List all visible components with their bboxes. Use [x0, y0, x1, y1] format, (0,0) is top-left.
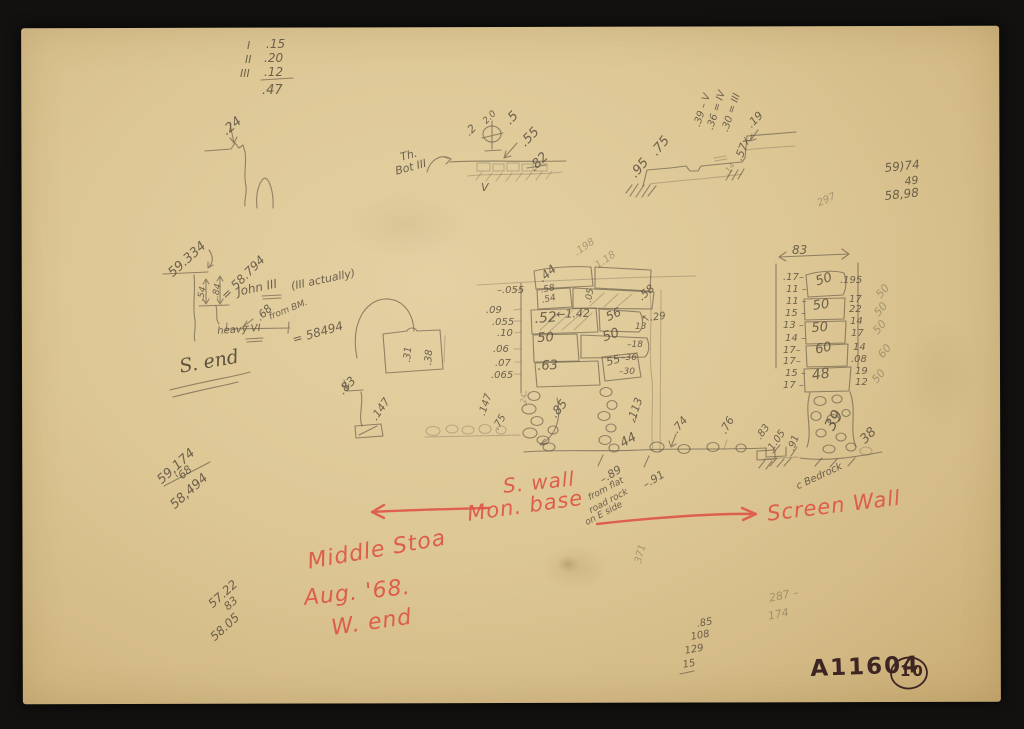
handwritten-note: .74 — [670, 415, 690, 435]
handwritten-note: 44 — [618, 431, 639, 451]
handwritten-note: 17– — [783, 357, 801, 367]
handwritten-note: 48 — [811, 367, 831, 383]
handwritten-note: .85 — [548, 397, 569, 419]
handwritten-note: 129 — [684, 644, 705, 657]
handwritten-note: .31 — [403, 346, 414, 363]
handwritten-note: 11 – — [786, 285, 807, 295]
handwritten-note: .195 — [840, 276, 862, 286]
handwritten-note: .147 — [478, 393, 494, 417]
handwritten-note: –36 — [621, 354, 637, 363]
handwritten-note: 2.0 — [482, 110, 498, 126]
handwritten-note: 297 — [816, 192, 838, 209]
handwritten-note: .20 — [264, 52, 283, 64]
handwritten-note: 19 — [855, 367, 868, 377]
handwritten-note: .14 — [723, 162, 737, 177]
handwritten-note: .055 — [492, 318, 514, 328]
handwritten-note: 60 — [814, 341, 833, 357]
handwritten-note: (III actually) — [290, 267, 356, 291]
handwritten-note: .09 — [486, 306, 502, 316]
handwritten-note: 50 — [537, 331, 554, 345]
handwritten-note: c Bedrock — [795, 462, 844, 492]
handwritten-note: 1.05 — [767, 429, 788, 453]
handwritten-note: .24 — [520, 394, 528, 406]
handwritten-note: .63 — [537, 359, 558, 373]
handwritten-note: .07 — [495, 359, 511, 369]
handwritten-note: 50 — [872, 300, 889, 318]
handwritten-note: 17 – — [783, 381, 804, 391]
handwritten-note: .82 — [527, 150, 551, 174]
red-label-w-end: W. end — [330, 607, 414, 640]
handwritten-note: .83 — [755, 423, 772, 442]
handwritten-note: –.91 — [641, 469, 666, 491]
handwritten-note: 13 — [635, 323, 646, 332]
handwritten-note: 58,98 — [884, 186, 919, 202]
handwritten-note: .85 — [696, 617, 713, 630]
red-label-middle-stoa: Middle Stoa — [306, 528, 448, 574]
handwritten-note: .75 — [649, 134, 672, 158]
handwritten-note: = 58494 — [291, 320, 344, 346]
handwritten-note: 50 — [812, 298, 830, 313]
handwritten-note: 50 — [811, 321, 828, 335]
handwritten-note: .76 — [718, 415, 736, 436]
handwritten-note: 58.05 — [208, 611, 242, 643]
handwritten-note: 50 — [870, 367, 887, 385]
red-label-date: Aug. '68. — [303, 577, 412, 610]
handwritten-note: 50 — [871, 318, 888, 336]
handwritten-note: .58 — [636, 283, 656, 303]
handwritten-note: 56 — [604, 306, 623, 323]
handwritten-note: 50 — [814, 271, 834, 288]
handwritten-note: .47 — [262, 84, 283, 97]
handwritten-note: .54 — [541, 294, 557, 306]
handwritten-note: III — [240, 68, 250, 79]
handwritten-note: 13 – — [783, 321, 804, 331]
handwritten-note: .83 — [336, 374, 358, 396]
handwritten-note: .147 — [369, 396, 392, 422]
handwritten-note: 59)74 — [884, 158, 920, 174]
handwritten-note: 55 — [605, 353, 621, 367]
handwritten-note: Bot III — [394, 158, 428, 177]
handwritten-note: 39 — [822, 407, 846, 433]
handwritten-note: 50 — [601, 326, 621, 344]
handwritten-note: 17– — [783, 346, 801, 356]
handwritten-note: 17 — [851, 329, 864, 339]
handwritten-note: .12 — [264, 66, 283, 78]
handwritten-note: –30 — [619, 368, 635, 377]
handwritten-note: .065 — [491, 371, 513, 381]
handwritten-note: 15 – — [785, 369, 806, 379]
handwritten-note: 15 — [682, 659, 696, 671]
handwritten-note: .10 — [497, 329, 513, 339]
handwritten-note: 83 — [792, 244, 807, 256]
handwritten-note: 11 – — [786, 297, 807, 307]
handwritten-note: ←1.42 — [556, 308, 590, 320]
handwritten-note: 1.18 — [594, 250, 618, 271]
handwritten-note: .15 — [266, 38, 285, 50]
handwritten-note: .44 — [536, 263, 558, 284]
handwritten-note: 50 — [874, 282, 891, 300]
handwritten-note: 14 – — [785, 334, 806, 344]
handwritten-note: .06 — [493, 345, 509, 355]
handwritten-note: .95 — [628, 156, 651, 180]
handwritten-note: 60 — [876, 342, 893, 360]
handwritten-note: .05 — [585, 288, 596, 304]
handwritten-note: .91 — [787, 434, 802, 452]
scanned-notebook-page: I.15II.20III.12.47.24Th.Bot III.22.0.5.5… — [0, 0, 1024, 729]
handwritten-note: .2 — [463, 123, 478, 138]
handwritten-note: 108 — [690, 630, 711, 643]
label-s-end: S. end — [178, 348, 240, 377]
handwritten-note: .24 — [220, 115, 244, 138]
handwritten-note: √ — [632, 417, 638, 426]
handwritten-note: .57x — [733, 136, 752, 162]
red-label-screen-wall: Screen Wall — [766, 488, 902, 525]
handwritten-note: 14 — [850, 317, 863, 327]
handwritten-note: –18 — [627, 341, 643, 350]
handwritten-note: .17– — [783, 273, 804, 283]
handwritten-note: .198 — [573, 237, 597, 258]
page-number: 10 — [900, 664, 925, 679]
handwritten-note: 22 — [849, 305, 862, 315]
handwritten-note: heavy VI — [217, 324, 261, 337]
handwritten-note: .5 — [503, 109, 521, 127]
handwritten-note: .08 — [851, 355, 867, 365]
handwritten-note: .54 — [197, 286, 209, 302]
annotation-layer: I.15II.20III.12.47.24Th.Bot III.22.0.5.5… — [0, 0, 1024, 729]
handwritten-note: 38 — [858, 425, 879, 446]
handwritten-note: 12 — [855, 378, 868, 388]
handwritten-note: 174 — [767, 607, 790, 622]
handwritten-note: .55 — [518, 125, 542, 149]
handwritten-note: I — [247, 40, 250, 51]
handwritten-note: 371 — [634, 544, 649, 565]
handwritten-note: .19 — [745, 110, 765, 130]
handwritten-note: 14 — [853, 343, 866, 353]
red-label-mon-base: Mon. base — [466, 488, 584, 525]
handwritten-note: .38 — [424, 349, 435, 366]
handwritten-note: from BM. — [268, 299, 309, 323]
handwritten-note: .52 — [534, 310, 557, 326]
handwritten-note: 59.334 — [166, 240, 209, 280]
handwritten-note: .75 — [492, 413, 509, 432]
handwritten-note: II — [245, 54, 252, 65]
handwritten-note: –.055 — [497, 286, 524, 296]
handwritten-note: 15 – — [785, 309, 806, 319]
handwritten-note: 287 – — [768, 587, 800, 604]
handwritten-note: V — [481, 182, 489, 193]
